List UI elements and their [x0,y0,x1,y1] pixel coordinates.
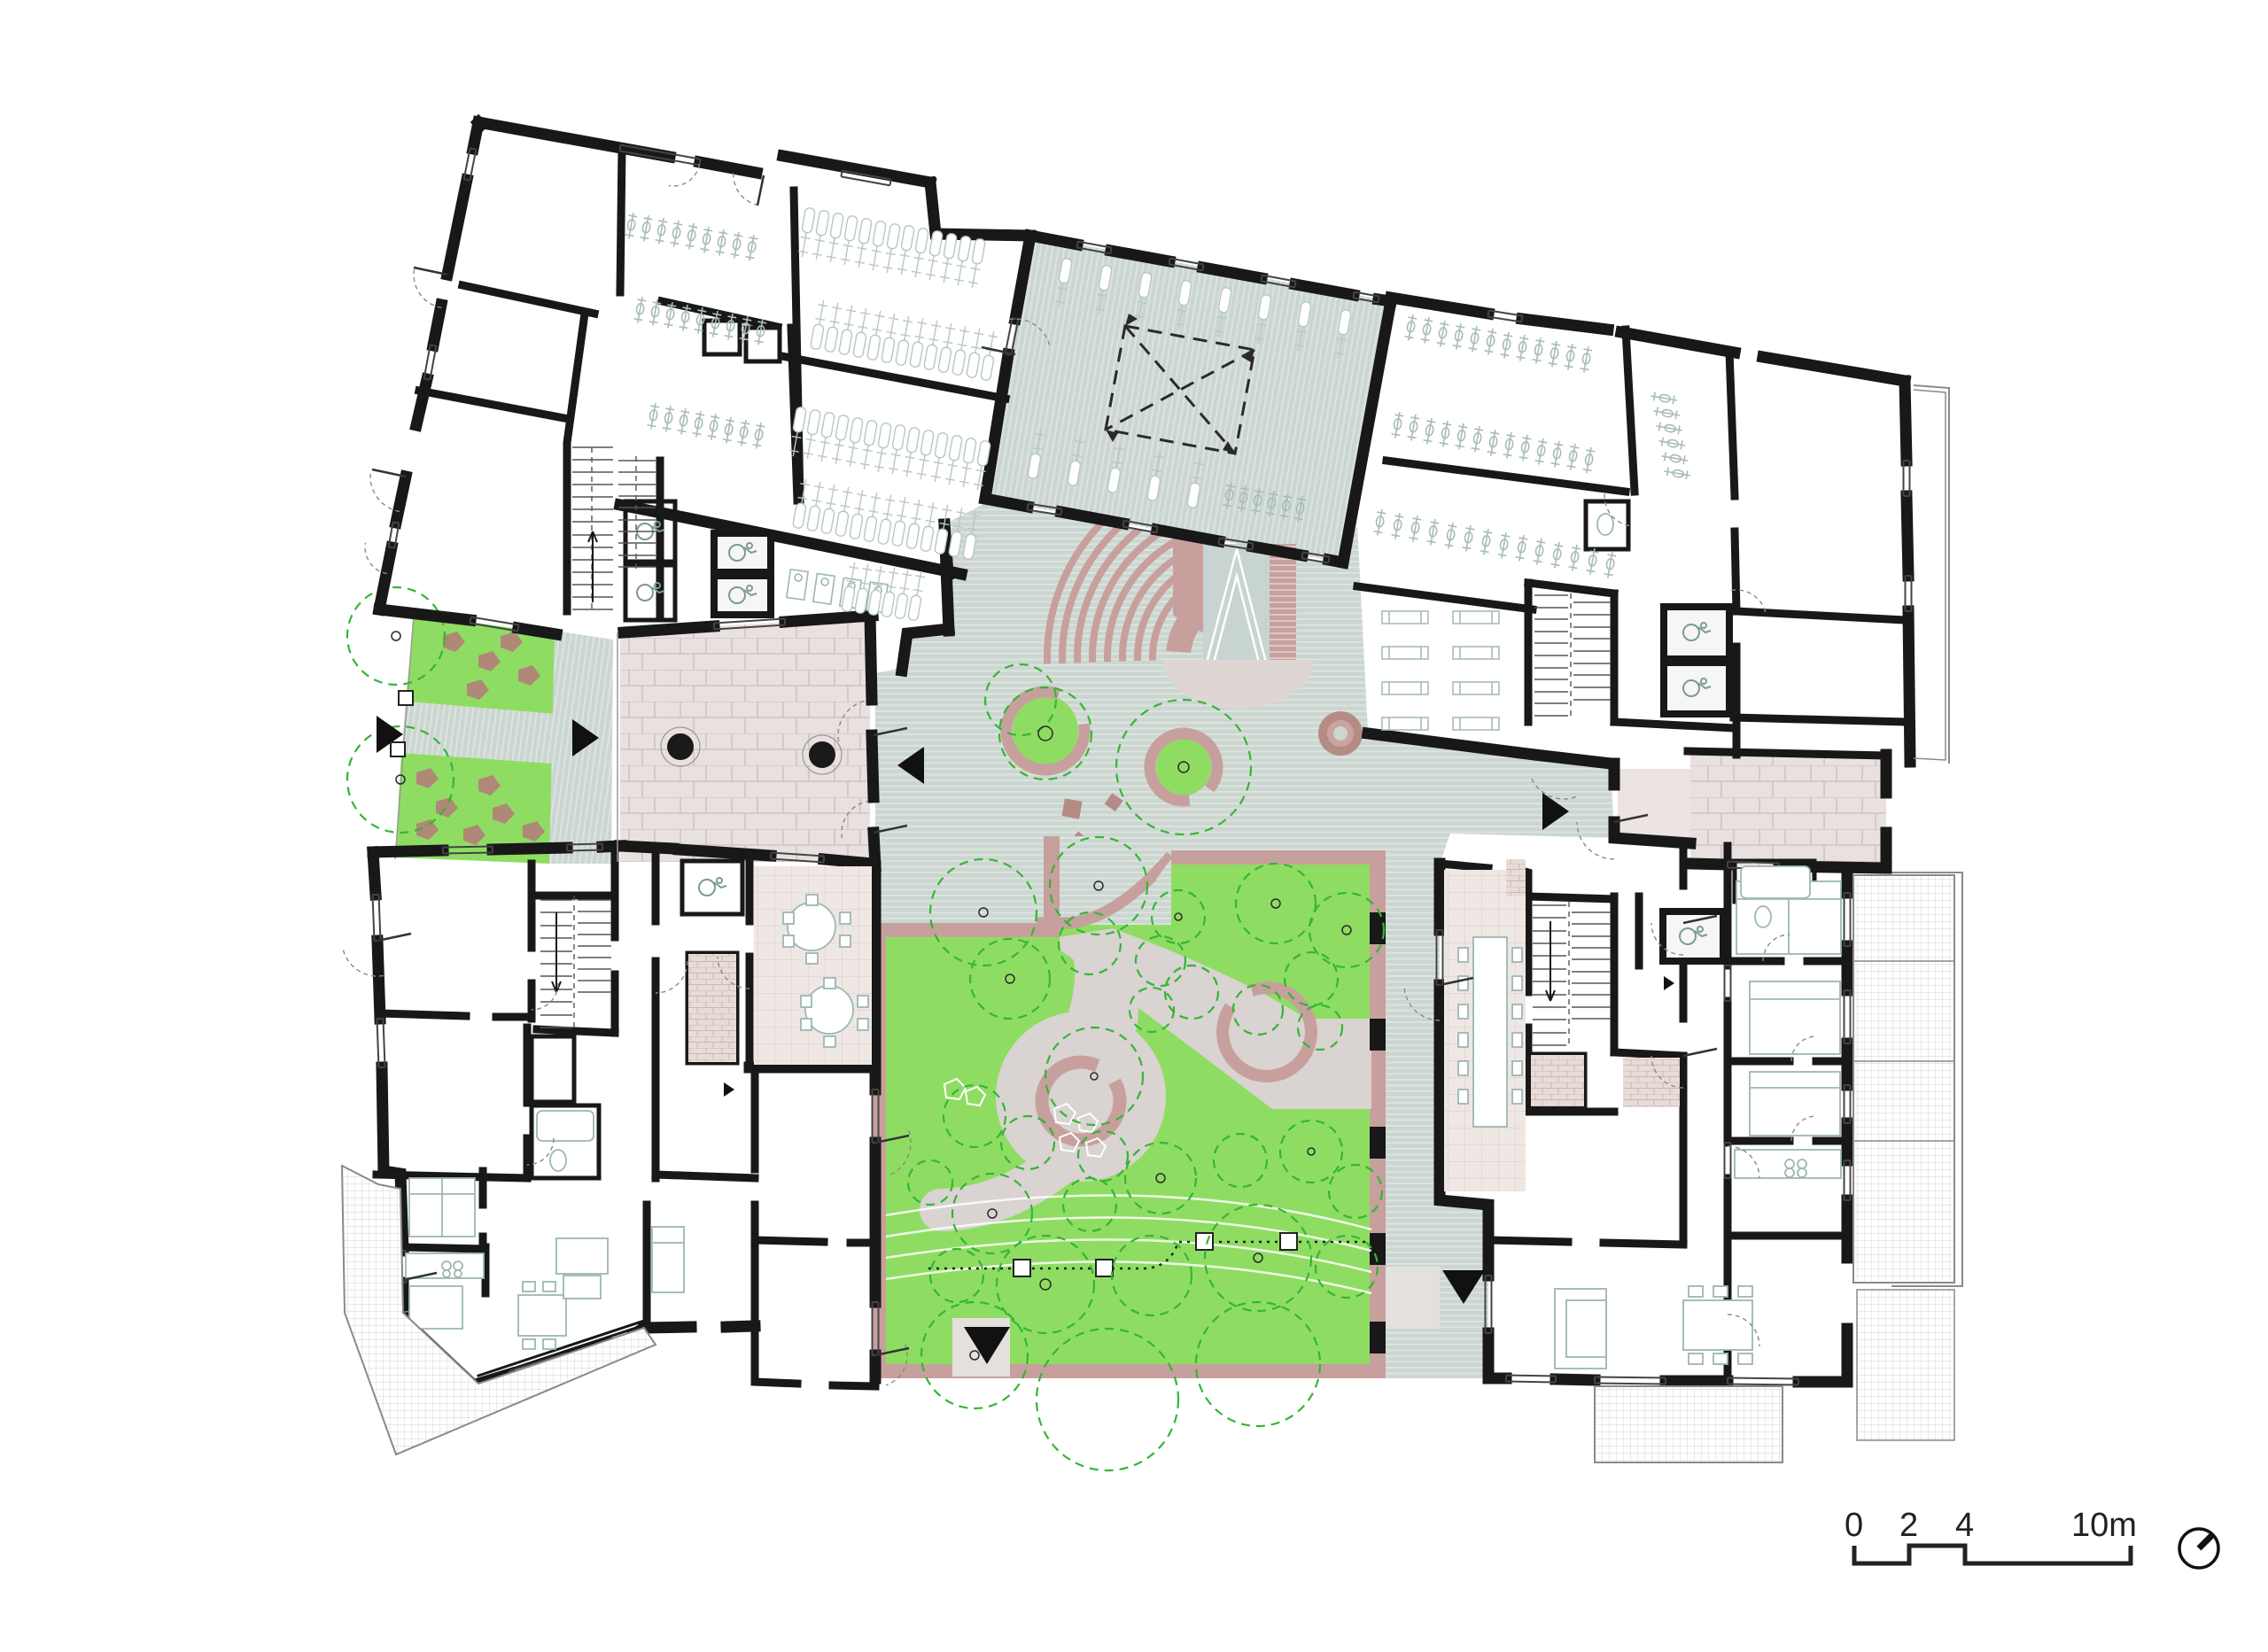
svg-text:10m: 10m [2071,1507,2137,1544]
svg-text:0: 0 [1845,1507,1863,1544]
svg-text:2: 2 [1899,1507,1918,1544]
svg-text:4: 4 [1955,1507,1974,1544]
